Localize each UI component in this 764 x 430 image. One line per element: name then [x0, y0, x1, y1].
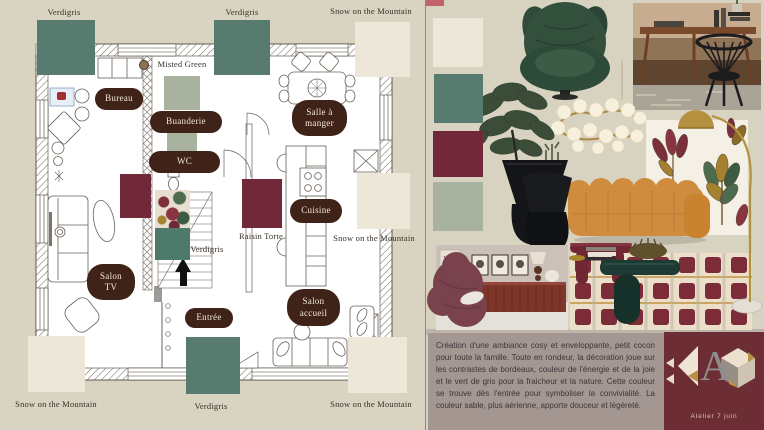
swatch-label-verdigris-top-left: Verdigris — [48, 7, 81, 17]
room-pill-salon-tv: SalonTV — [87, 264, 135, 300]
logo-letter: A — [700, 344, 731, 390]
swatch-label-raisin-torte: Raisin Torte — [239, 231, 283, 241]
room-pill-entree: Entrée — [185, 308, 233, 328]
room-pill-salon-accueil: Salonaccueil — [287, 289, 340, 326]
swatch-label-snow-mid-right: Snow on the Mountain — [333, 233, 415, 243]
logo-studio-name: Atelier 7 juin — [664, 413, 764, 420]
burgundy-armchair-room — [427, 245, 568, 330]
logo-mark: A — [664, 332, 764, 410]
flower-icon — [139, 60, 149, 70]
swatch-label-verdigris-top-mid: Verdigris — [226, 7, 259, 17]
room-pill-bureau: Bureau — [95, 88, 143, 110]
room-pill-cuisine: Cuisine — [290, 199, 342, 223]
swatch-raisin-torte-left — [120, 174, 151, 218]
swatch-verdigris-bottom — [186, 337, 240, 394]
walnut-console-desk — [633, 0, 761, 110]
swatch-snow-top-right — [355, 22, 410, 77]
brand-logo: A Atelier 7 juin — [664, 332, 764, 430]
swatch-right-misted — [433, 182, 483, 231]
swatch-label-snow-bottom-right: Snow on the Mountain — [330, 399, 412, 409]
orange-boucle-sofa — [567, 178, 710, 245]
swatch-label-snow-bottom-left: Snow on the Mountain — [15, 399, 97, 409]
swatch-snow-bottom-left — [28, 336, 85, 392]
swatch-verdigris-mid — [155, 228, 190, 260]
swatch-verdigris-top-left — [37, 20, 95, 75]
swatch-raisin-torte-kitchen — [242, 179, 282, 228]
swatch-misted-green-a — [164, 76, 200, 110]
room-pill-wc: WC — [149, 151, 220, 173]
plan-braced-wall — [143, 56, 152, 290]
swatch-label-verdigris-mid: Verdigris — [191, 244, 224, 254]
concept-description: Création d'une ambiance cosy et envelopp… — [428, 333, 664, 430]
room-pill-salle-a-manger: Salle àmanger — [292, 100, 347, 136]
swatch-label-verdigris-bottom: Verdigris — [195, 401, 228, 411]
plan-wc — [168, 172, 179, 191]
swatch-right-raisin — [433, 131, 483, 177]
room-pill-buanderie: Buanderie — [150, 111, 222, 133]
swatch-snow-bottom-right — [348, 337, 407, 393]
swatch-right-verdigris — [434, 74, 483, 123]
swatch-label-misted-green: Misted Green — [158, 59, 207, 69]
design-board: Verdigris Verdigris Snow on the Mountain… — [0, 0, 764, 430]
swatch-snow-mid-right — [357, 173, 410, 229]
swatch-verdigris-top-mid — [214, 20, 270, 75]
swatch-label-snow-top-right: Snow on the Mountain — [330, 6, 412, 16]
swatch-floral-wallpaper — [155, 190, 190, 230]
swatch-right-snow — [433, 18, 483, 67]
